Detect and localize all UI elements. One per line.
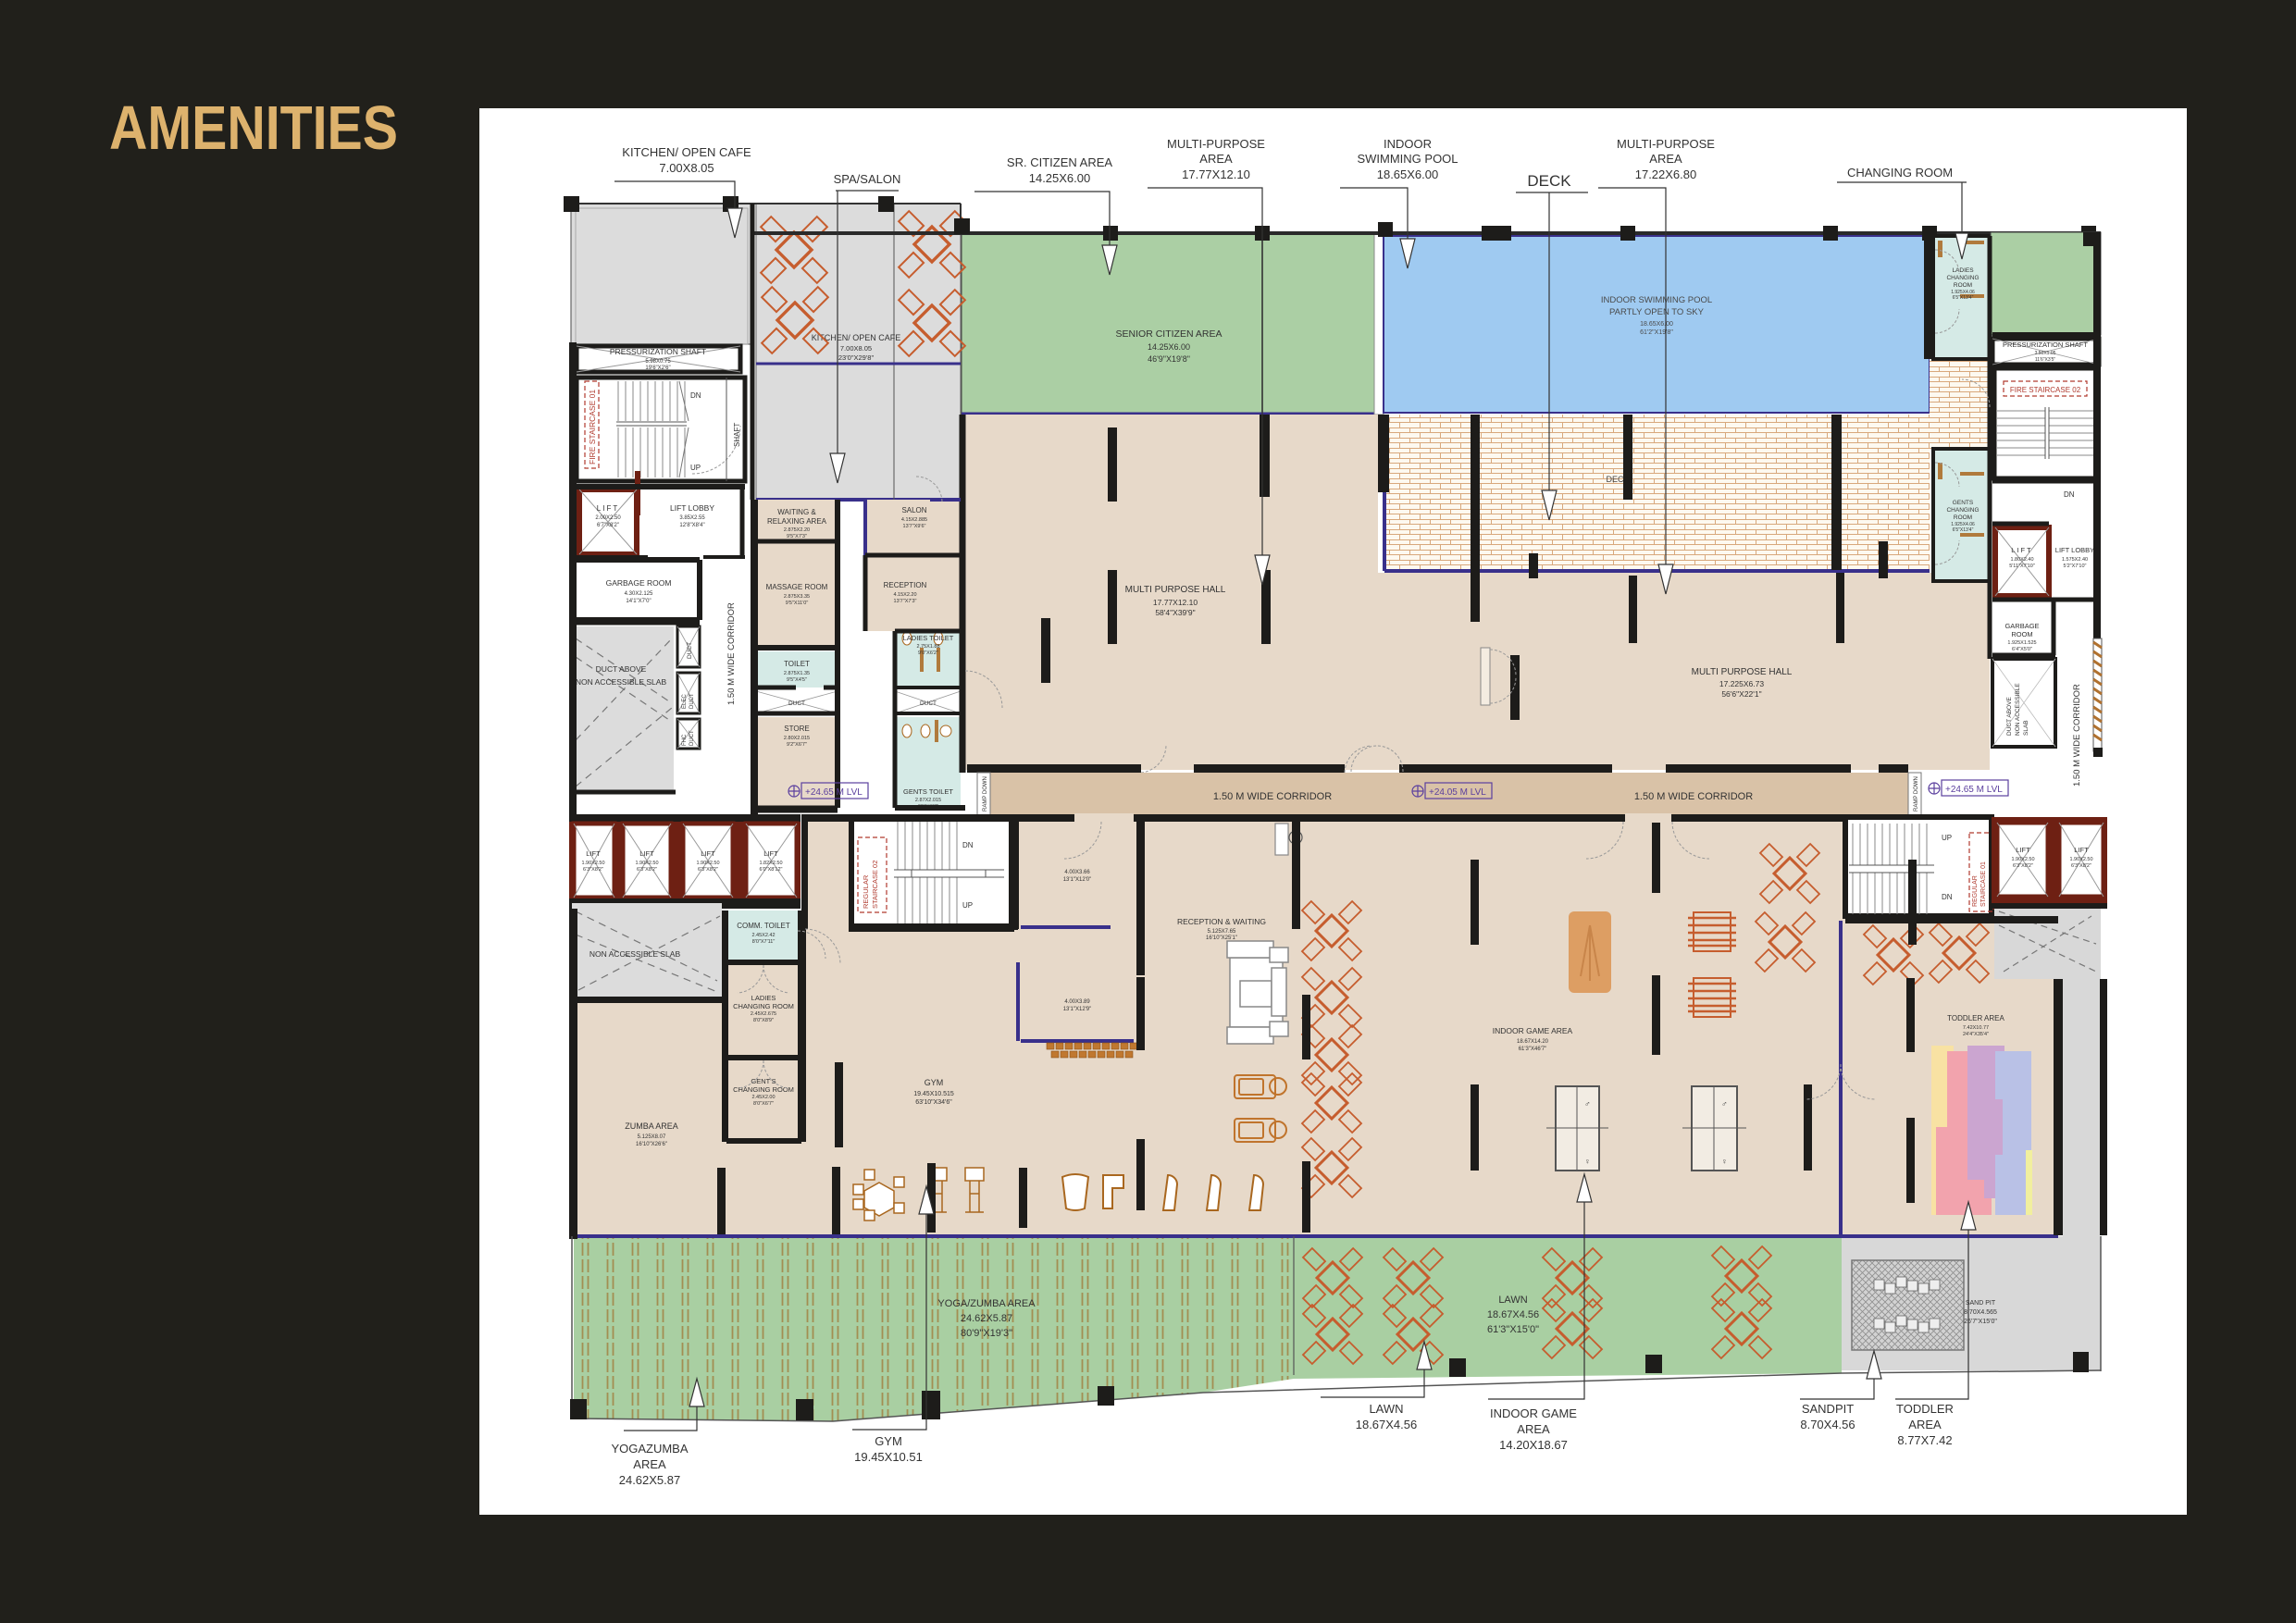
svg-text:SR. CITIZEN AREA: SR. CITIZEN AREA: [1007, 155, 1112, 169]
svg-text:7.00X8.05: 7.00X8.05: [840, 344, 872, 353]
svg-text:DUCT: DUCT: [920, 700, 937, 707]
svg-text:ROOM: ROOM: [2011, 630, 2032, 638]
svg-text:17.22X6.80: 17.22X6.80: [1635, 167, 1697, 181]
svg-text:4.00X3.89: 4.00X3.89: [1064, 999, 1090, 1005]
svg-text:AREA: AREA: [1908, 1418, 1942, 1431]
svg-text:MULTI-PURPOSE: MULTI-PURPOSE: [1167, 137, 1265, 151]
svg-text:14'1"X7'0": 14'1"X7'0": [626, 599, 651, 604]
svg-text:DUCT: DUCT: [687, 642, 693, 659]
svg-text:LIFT: LIFT: [763, 849, 778, 858]
svg-text:2.75X1.88: 2.75X1.88: [916, 644, 939, 650]
svg-text:RECEPTION: RECEPTION: [884, 581, 927, 589]
svg-text:CHANGING ROOM: CHANGING ROOM: [733, 1002, 794, 1010]
svg-text:2.45X2.00: 2.45X2.00: [751, 1095, 775, 1100]
svg-text:16'10"X26'6": 16'10"X26'6": [636, 1142, 667, 1147]
svg-text:3.85X2.55: 3.85X2.55: [679, 515, 705, 521]
svg-text:GARBAGE: GARBAGE: [2004, 622, 2039, 630]
svg-text:13'7"X9'6": 13'7"X9'6": [903, 524, 926, 529]
svg-text:PRESSURIZATION SHAFT: PRESSURIZATION SHAFT: [610, 347, 706, 356]
svg-text:INDOOR: INDOOR: [1384, 137, 1432, 151]
svg-text:2.00X2.50: 2.00X2.50: [595, 515, 621, 521]
svg-text:INDOOR GAME AREA: INDOOR GAME AREA: [1493, 1026, 1573, 1035]
svg-text:1.90X2.50: 1.90X2.50: [635, 861, 658, 866]
svg-text:2.45X2.42: 2.45X2.42: [751, 933, 775, 938]
svg-text:13'1"X12'0": 13'1"X12'0": [1063, 877, 1092, 883]
svg-text:1.50 M WIDE CORRIDOR: 1.50 M WIDE CORRIDOR: [1213, 791, 1332, 802]
svg-text:STAIRCASE 01: STAIRCASE 01: [1980, 861, 1987, 907]
svg-text:GENT'S: GENT'S: [751, 1077, 776, 1085]
svg-text:5.125X7.65: 5.125X7.65: [1208, 929, 1236, 935]
svg-text:2.875X2.20: 2.875X2.20: [784, 527, 810, 533]
svg-text:61'2"X19'8": 61'2"X19'8": [1640, 329, 1673, 336]
svg-text:17.225X6.73: 17.225X6.73: [1719, 679, 1764, 688]
svg-text:9'5"X4'5": 9'5"X4'5": [787, 677, 807, 683]
svg-text:6'3"X8'2": 6'3"X8'2": [698, 867, 718, 873]
svg-text:UP: UP: [1942, 834, 1952, 842]
svg-text:TODDLER AREA: TODDLER AREA: [1947, 1014, 2004, 1022]
svg-text:PARTLY OPEN TO SKY: PARTLY OPEN TO SKY: [1609, 307, 1705, 317]
svg-text:8'0"X6'7": 8'0"X6'7": [753, 1101, 774, 1107]
svg-text:LIFT: LIFT: [597, 504, 619, 513]
svg-text:FIRE STAIRCASE 01: FIRE STAIRCASE 01: [588, 390, 597, 465]
svg-text:2.87X2.015: 2.87X2.015: [915, 798, 941, 803]
svg-text:+24.05 M LVL: +24.05 M LVL: [1429, 787, 1486, 798]
svg-text:AREA: AREA: [1517, 1422, 1550, 1436]
svg-text:6'3"X8'2": 6'3"X8'2": [583, 867, 603, 873]
svg-text:FIRE STAIRCASE 02: FIRE STAIRCASE 02: [2010, 386, 2081, 394]
svg-text:4.15X2.885: 4.15X2.885: [901, 517, 927, 523]
svg-text:1.575X2.40: 1.575X2.40: [2062, 557, 2088, 563]
svg-text:LIFT: LIFT: [586, 849, 601, 858]
svg-text:NON ACCESSIBLE SLAB: NON ACCESSIBLE SLAB: [576, 677, 667, 687]
svg-text:LIFT: LIFT: [2074, 846, 2089, 854]
svg-text:♀: ♀: [1584, 1157, 1591, 1166]
svg-text:4.15X2.20: 4.15X2.20: [893, 592, 916, 598]
svg-text:6'3"X8'2": 6'3"X8'2": [2071, 863, 2091, 869]
svg-text:1.925X1.525: 1.925X1.525: [2007, 640, 2036, 646]
svg-text:6'5"X13'4": 6'5"X13'4": [1953, 527, 1974, 533]
svg-text:DECK: DECK: [1527, 172, 1571, 190]
svg-text:MASSAGE ROOM: MASSAGE ROOM: [766, 583, 828, 591]
svg-text:18.67X4.56: 18.67X4.56: [1356, 1418, 1418, 1431]
svg-text:INDOOR GAME: INDOOR GAME: [1490, 1406, 1577, 1420]
svg-text:13'1"X12'9": 13'1"X12'9": [1063, 1007, 1092, 1012]
svg-text:ELEC: ELEC: [682, 694, 688, 709]
svg-text:LIFT: LIFT: [2011, 546, 2032, 554]
svg-text:GENTS: GENTS: [1953, 500, 1974, 506]
svg-text:3.50X1.05: 3.50X1.05: [2035, 351, 2056, 356]
svg-text:5.98X0.75: 5.98X0.75: [645, 359, 671, 365]
svg-text:LAWN: LAWN: [1369, 1402, 1403, 1416]
svg-text:♂: ♂: [1584, 1099, 1591, 1109]
svg-text:9'5"X11'0": 9'5"X11'0": [786, 601, 809, 606]
svg-text:24'4"X35'4": 24'4"X35'4": [1963, 1032, 1989, 1037]
svg-text:CHANGING: CHANGING: [1946, 507, 1979, 514]
svg-text:MULTI PURPOSE HALL: MULTI PURPOSE HALL: [1692, 667, 1793, 677]
svg-text:LAWN: LAWN: [1498, 1295, 1527, 1306]
svg-text:18.67X4.56: 18.67X4.56: [1487, 1309, 1539, 1320]
svg-text:TOILET: TOILET: [784, 660, 810, 668]
svg-text:61'3"X15'0": 61'3"X15'0": [1487, 1324, 1539, 1335]
svg-text:CHANGING ROOM: CHANGING ROOM: [733, 1085, 794, 1094]
svg-text:4.30X2.125: 4.30X2.125: [625, 591, 653, 597]
svg-text:2.875X1.35: 2.875X1.35: [784, 671, 810, 676]
svg-text:STAIRCASE 02: STAIRCASE 02: [871, 861, 879, 909]
svg-text:LADIES: LADIES: [1952, 267, 1974, 274]
svg-text:DUCT: DUCT: [788, 700, 805, 707]
svg-text:LIFT LOBBY: LIFT LOBBY: [2055, 546, 2094, 554]
svg-text:TODDLER: TODDLER: [1896, 1402, 1954, 1416]
svg-text:6'4"X5'0": 6'4"X5'0": [2012, 647, 2032, 652]
svg-text:LIFT: LIFT: [639, 849, 654, 858]
svg-text:9'2"X6'7": 9'2"X6'7": [787, 742, 807, 748]
svg-text:LIFT: LIFT: [701, 849, 715, 858]
svg-text:ROOM: ROOM: [1954, 514, 1972, 521]
svg-text:MULTI PURPOSE HALL: MULTI PURPOSE HALL: [1125, 585, 1226, 595]
svg-text:19.45X10.515: 19.45X10.515: [913, 1091, 954, 1097]
svg-text:56'6"X22'1": 56'6"X22'1": [1721, 689, 1761, 699]
svg-text:WAITING &: WAITING &: [777, 508, 816, 516]
svg-text:17.77X12.10: 17.77X12.10: [1182, 167, 1250, 181]
svg-text:DUCT ABOVE: DUCT ABOVE: [2006, 697, 2013, 736]
svg-text:24.62X5.87: 24.62X5.87: [619, 1473, 681, 1487]
svg-text:18.65X6.00: 18.65X6.00: [1640, 321, 1673, 328]
svg-text:GARBAGE ROOM: GARBAGE ROOM: [606, 578, 672, 588]
svg-text:LIFT LOBBY: LIFT LOBBY: [670, 503, 714, 513]
svg-text:CHANGING: CHANGING: [1946, 275, 1979, 281]
svg-text:KITCHEN/ OPEN CAFE: KITCHEN/ OPEN CAFE: [622, 145, 751, 159]
svg-text:INDOOR SWIMMING POOL: INDOOR SWIMMING POOL: [1601, 295, 1712, 305]
svg-text:ZUMBA AREA: ZUMBA AREA: [625, 1121, 678, 1131]
svg-text:6'7"X8'2": 6'7"X8'2": [597, 523, 619, 528]
svg-text:8.77X7.42: 8.77X7.42: [1897, 1433, 1952, 1447]
svg-text:19.45X10.51: 19.45X10.51: [854, 1450, 923, 1464]
svg-text:5'11"X7'10": 5'11"X7'10": [2009, 564, 2035, 569]
svg-text:FHC: FHC: [682, 734, 688, 746]
svg-text:SHAFT: SHAFT: [733, 423, 741, 447]
svg-text:6'3"X8'2": 6'3"X8'2": [2013, 863, 2033, 869]
svg-text:DN: DN: [690, 391, 701, 400]
svg-text:1.80X2.40: 1.80X2.40: [2010, 557, 2033, 563]
svg-text:24.62X5.87: 24.62X5.87: [961, 1313, 1012, 1324]
svg-text:DN: DN: [2064, 490, 2075, 499]
svg-text:46'9"X19'8": 46'9"X19'8": [1148, 354, 1190, 364]
svg-text:+24.65 M LVL: +24.65 M LVL: [805, 787, 863, 798]
svg-text:ROOM: ROOM: [1954, 282, 1972, 289]
svg-text:GENTS TOILET: GENTS TOILET: [903, 787, 953, 796]
svg-text:NON ACCESSIBLE: NON ACCESSIBLE: [2015, 683, 2021, 736]
svg-text:9'5"X7'3": 9'5"X7'3": [787, 534, 807, 539]
svg-text:4.00X3.66: 4.00X3.66: [1064, 870, 1090, 875]
svg-text:1.50 M WIDE CORRIDOR: 1.50 M WIDE CORRIDOR: [2072, 684, 2082, 787]
svg-text:AREA: AREA: [1199, 152, 1233, 166]
svg-text:SALON: SALON: [901, 506, 926, 514]
svg-text:MULTI-PURPOSE: MULTI-PURPOSE: [1617, 137, 1715, 151]
svg-text:63'10"X34'6": 63'10"X34'6": [915, 1099, 952, 1106]
svg-text:DN: DN: [1942, 893, 1953, 901]
svg-text:NON ACCESSIBLE SLAB: NON ACCESSIBLE SLAB: [590, 949, 681, 959]
svg-text:LIFT: LIFT: [2016, 846, 2030, 854]
svg-text:AREA: AREA: [1649, 152, 1682, 166]
svg-text:8'0"X8'9": 8'0"X8'9": [753, 1018, 774, 1023]
svg-text:6'0"X8'12": 6'0"X8'12": [760, 867, 783, 873]
svg-text:♂: ♂: [1721, 1099, 1728, 1109]
svg-text:18.65X6.00: 18.65X6.00: [1377, 167, 1439, 181]
svg-text:14.25X6.00: 14.25X6.00: [1029, 171, 1091, 185]
svg-text:13'7"X7'3": 13'7"X7'3": [894, 599, 917, 604]
svg-text:PRESSURIZATION SHAFT: PRESSURIZATION SHAFT: [2003, 341, 2088, 349]
svg-text:1.90X2.50: 1.90X2.50: [2069, 857, 2092, 862]
svg-text:1.50 M WIDE CORRIDOR: 1.50 M WIDE CORRIDOR: [1634, 791, 1753, 802]
svg-text:DUCT: DUCT: [689, 730, 695, 746]
svg-text:+24.65 M LVL: +24.65 M LVL: [1945, 785, 2003, 795]
svg-text:COMM. TOILET: COMM. TOILET: [737, 922, 790, 930]
svg-text:STORE: STORE: [784, 725, 809, 733]
svg-text:1.82X2.50: 1.82X2.50: [759, 861, 782, 866]
svg-text:61'3"X46'7": 61'3"X46'7": [1519, 1047, 1547, 1052]
svg-text:SAND PIT: SAND PIT: [1966, 1300, 1996, 1307]
svg-text:SWIMMING POOL: SWIMMING POOL: [1357, 152, 1458, 166]
svg-text:SLAB: SLAB: [2023, 720, 2029, 736]
svg-text:7.00X8.05: 7.00X8.05: [659, 161, 714, 175]
svg-text:DN: DN: [962, 841, 974, 849]
svg-text:1.50 M WIDE CORRIDOR: 1.50 M WIDE CORRIDOR: [726, 602, 737, 705]
svg-text:RELAXING AREA: RELAXING AREA: [767, 517, 827, 526]
svg-text:LADIES: LADIES: [751, 994, 776, 1002]
svg-text:5'2"X7'10": 5'2"X7'10": [2064, 564, 2087, 569]
svg-text:17.77X12.10: 17.77X12.10: [1153, 598, 1198, 607]
svg-text:YOGA/ZUMBA AREA: YOGA/ZUMBA AREA: [937, 1298, 1036, 1309]
svg-text:AMENITIES: AMENITIES: [109, 93, 398, 163]
svg-text:UP: UP: [962, 901, 973, 910]
svg-text:REGULAR: REGULAR: [1972, 875, 1979, 907]
svg-text:14.25X6.00: 14.25X6.00: [1148, 342, 1190, 352]
svg-text:2.45X2.675: 2.45X2.675: [751, 1011, 776, 1017]
svg-text:2.80X2.015: 2.80X2.015: [784, 736, 810, 741]
svg-text:80'9"X19'3": 80'9"X19'3": [961, 1328, 1012, 1339]
svg-text:SENIOR CITIZEN AREA: SENIOR CITIZEN AREA: [1116, 328, 1222, 340]
svg-text:1.90X2.50: 1.90X2.50: [581, 861, 604, 866]
svg-text:RAMP DOWN: RAMP DOWN: [1914, 776, 1919, 811]
svg-text:RECEPTION & WAITING: RECEPTION & WAITING: [1177, 917, 1266, 926]
svg-text:UP: UP: [690, 464, 701, 472]
svg-text:14.20X18.67: 14.20X18.67: [1499, 1438, 1568, 1452]
svg-text:GYM: GYM: [925, 1078, 944, 1087]
svg-text:DUCT: DUCT: [689, 693, 695, 709]
svg-text:8.70X4.56: 8.70X4.56: [1800, 1418, 1855, 1431]
svg-text:DUCT ABOVE: DUCT ABOVE: [596, 664, 647, 674]
svg-text:1.90X2.50: 1.90X2.50: [2011, 857, 2034, 862]
svg-text:23'0"X29'8": 23'0"X29'8": [838, 353, 875, 362]
svg-text:2.875X3.35: 2.875X3.35: [784, 594, 810, 600]
svg-text:18.67X14.20: 18.67X14.20: [1517, 1039, 1549, 1045]
svg-text:19'6"X2'6": 19'6"X2'6": [645, 365, 670, 371]
svg-text:SPA/SALON: SPA/SALON: [834, 172, 901, 186]
svg-text:LADIES TOILET: LADIES TOILET: [903, 634, 954, 642]
svg-text:CHANGING ROOM: CHANGING ROOM: [1847, 166, 1953, 180]
svg-text:REGULAR: REGULAR: [862, 874, 870, 909]
svg-text:1.90X2.50: 1.90X2.50: [696, 861, 719, 866]
svg-text:8'0"X7'11": 8'0"X7'11": [752, 939, 776, 945]
svg-text:12'8"X8'4": 12'8"X8'4": [679, 523, 704, 528]
svg-text:58'4"X39'9": 58'4"X39'9": [1155, 608, 1195, 617]
svg-text:AREA: AREA: [633, 1457, 666, 1471]
svg-text:7.42X10.77: 7.42X10.77: [1963, 1025, 1989, 1031]
svg-text:5.125X8.07: 5.125X8.07: [638, 1134, 666, 1140]
svg-text:YOGAZUMBA: YOGAZUMBA: [611, 1442, 688, 1456]
svg-text:RAMP DOWN: RAMP DOWN: [983, 776, 988, 811]
svg-text:9'0"X6'2": 9'0"X6'2": [918, 650, 938, 656]
svg-text:11'6"X3'5": 11'6"X3'5": [2035, 357, 2056, 363]
svg-text:GYM: GYM: [875, 1434, 902, 1448]
svg-text:♀: ♀: [1721, 1157, 1728, 1166]
svg-text:SANDPIT: SANDPIT: [1802, 1402, 1854, 1416]
svg-text:6'5"X13'4": 6'5"X13'4": [1953, 295, 1974, 301]
svg-text:6'3"X8'2": 6'3"X8'2": [637, 867, 657, 873]
svg-text:16'10"X25'1": 16'10"X25'1": [1206, 935, 1237, 941]
